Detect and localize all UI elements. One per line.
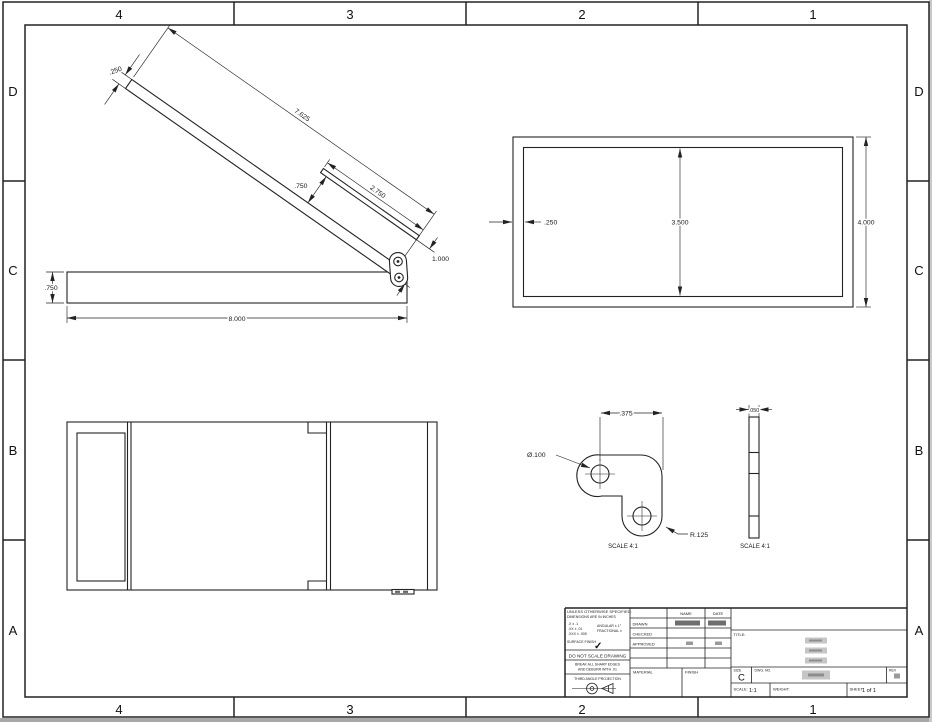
scale-value: 1:1 <box>749 688 757 694</box>
cad-drawing-canvas: 4 3 2 1 4 3 2 1 D C B A D C B A 7.625 <box>0 0 932 722</box>
zone-row-right-d: D <box>914 84 923 99</box>
row-label-approved: APPROVED <box>633 642 655 647</box>
zone-col-bottom-2: 2 <box>578 702 585 717</box>
dim-outer-height: 4.000 <box>857 220 874 227</box>
note-tol-1: .X ± .1 <box>568 622 578 626</box>
hinge-pin-upper-center <box>397 260 400 263</box>
drawing-sheet: 4 3 2 1 4 3 2 1 D C B A D C B A 7.625 <box>0 0 932 722</box>
dim-hole-offset: .375 <box>619 411 632 418</box>
surface-finish-checkmark: ✓ <box>594 641 602 652</box>
zone-row-left-d: D <box>8 84 17 99</box>
zone-row-left-a: A <box>9 623 18 638</box>
zone-row-right-c: C <box>914 263 923 278</box>
sheet-background <box>0 0 932 722</box>
weight-label: WEIGHT: <box>773 687 790 692</box>
bracket-side-scale-label: SCALE 4:1 <box>740 544 770 550</box>
zone-col-bottom-3: 3 <box>346 702 353 717</box>
note-unless-specified: UNLESS OTHERWISE SPECIFIED: <box>567 609 632 614</box>
size-value: C <box>738 673 745 684</box>
note-tol-angular: ANGULAR ± 1° <box>597 624 622 628</box>
bracket-detail-scale-label: SCALE 4:1 <box>608 544 638 550</box>
do-not-scale-note: DO NOT SCALE DRAWING <box>569 654 627 659</box>
dim-base-height: .750 <box>44 285 57 292</box>
hinge-pin-lower-center <box>398 276 401 279</box>
rev-value-mark <box>894 674 900 679</box>
dwg-no-label: DWG. NO. <box>755 669 772 673</box>
drawn-name-redacted <box>675 621 700 626</box>
zone-col-bottom-1: 1 <box>809 702 816 717</box>
zone-row-left-b: B <box>9 443 18 458</box>
dim-hole-diameter: Ø.100 <box>527 452 546 459</box>
zone-col-top-4: 4 <box>115 7 122 22</box>
finish-label: FINISH <box>685 670 698 675</box>
zone-col-top-3: 3 <box>346 7 353 22</box>
row-label-checked: CHECKED <box>633 632 653 637</box>
zone-row-left-c: C <box>8 263 17 278</box>
dim-inner-height: 3.500 <box>671 220 688 227</box>
approved-name-mark <box>686 642 693 646</box>
dim-end-width: 1.000 <box>432 256 449 263</box>
dim-hinge-gap: .750 <box>294 183 307 190</box>
note-tol-frac: FRACTIONAL ± <box>597 629 622 633</box>
name-header: NAME <box>680 611 692 616</box>
dim-base-length: 8.000 <box>228 316 245 323</box>
note-tol-2: .XX ± .01 <box>568 627 582 631</box>
material-label: MATERIAL <box>633 670 653 675</box>
approved-date-mark <box>715 642 722 646</box>
note-surface-finish: SURFACE FINISH <box>567 640 596 644</box>
row-label-drawn: DRAWN <box>633 622 648 627</box>
title-label: TITLE: <box>734 632 746 637</box>
projection-label: THIRD ANGLE PROJECTION <box>574 677 621 681</box>
rev-label: REV <box>889 669 897 673</box>
deburr-note-1: BREAK ALL SHARP EDGES <box>575 663 621 667</box>
window-edge-bottom <box>0 718 932 722</box>
dim-corner-radius: R.125 <box>690 532 708 539</box>
date-header: DATE <box>713 611 724 616</box>
sheet-value: 1 of 1 <box>862 688 876 694</box>
note-units: DIMENSIONS ARE IN INCHES <box>567 615 616 619</box>
zone-row-right-b: B <box>915 443 924 458</box>
zone-col-top-1: 1 <box>809 7 816 22</box>
zone-col-top-2: 2 <box>578 7 585 22</box>
base-outline <box>67 272 407 303</box>
dim-bracket-thickness: .050 <box>749 408 760 414</box>
dim-wall-thickness: .250 <box>544 220 557 227</box>
scale-label: SCALE: <box>734 687 748 692</box>
deburr-note-2: AND DEBURR WITH .01 <box>578 668 617 672</box>
note-tol-3: .XXX ± .005 <box>568 632 587 636</box>
zone-col-bottom-4: 4 <box>115 702 122 717</box>
drawn-date-redacted <box>708 621 726 626</box>
zone-row-right-a: A <box>915 623 924 638</box>
